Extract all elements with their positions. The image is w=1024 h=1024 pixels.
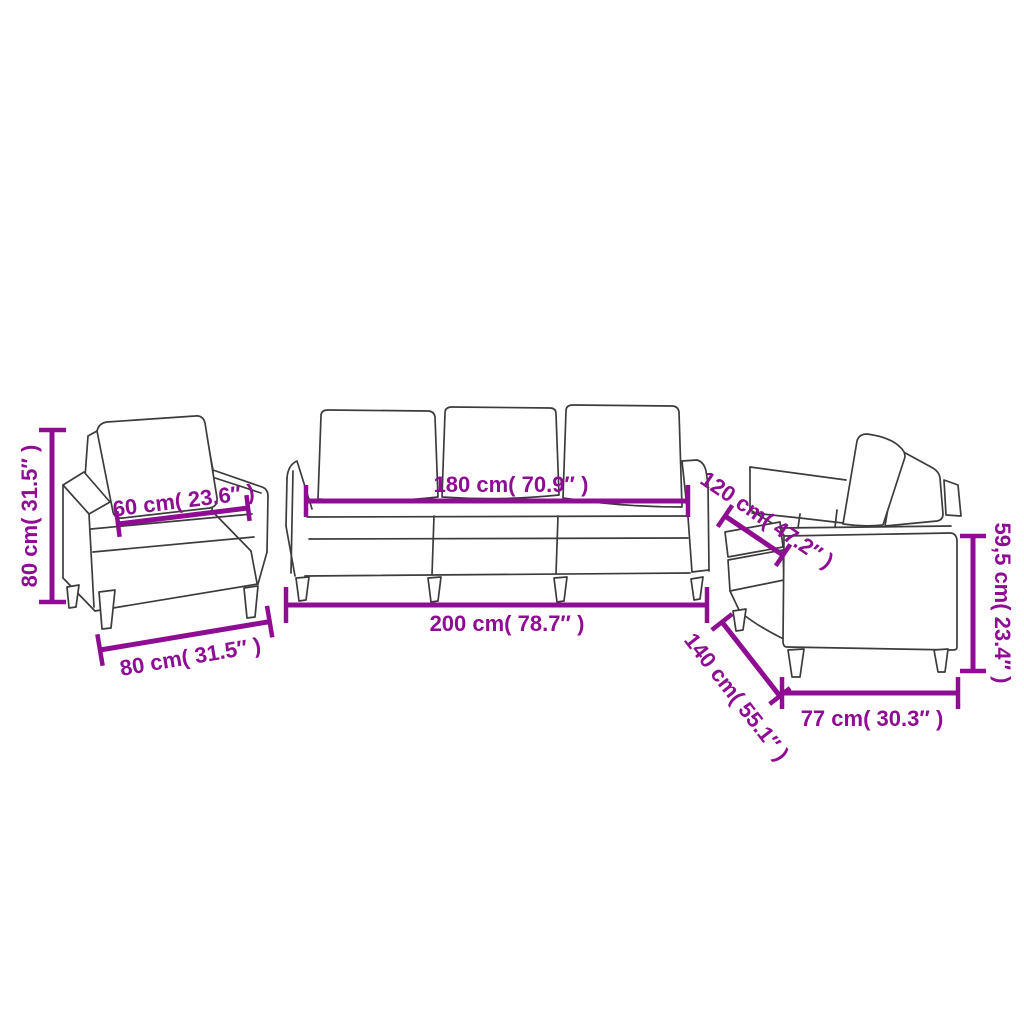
armchair-right-arm-outer bbox=[267, 496, 268, 552]
sofa2-seat-cushion-edge bbox=[835, 510, 837, 527]
armchair-leg bbox=[244, 586, 258, 618]
sofa3-seat-divider bbox=[556, 516, 558, 574]
seam-line bbox=[309, 538, 688, 539]
sofa2-leg bbox=[934, 649, 948, 672]
armchair-height-label: 80 cm( 31.5″ ) bbox=[17, 445, 42, 588]
sofa3-leg bbox=[428, 577, 441, 602]
two-seater-height-label: 59,5 cm( 23.4″ ) bbox=[990, 523, 1015, 684]
armchair-height-dimension: 80 cm( 31.5″ ) bbox=[17, 430, 66, 602]
sofa3-leg bbox=[691, 577, 703, 600]
armchair-width-label: 80 cm( 31.5″ ) bbox=[118, 633, 263, 681]
seam-line bbox=[93, 537, 254, 552]
three-seater-seat-width-label: 180 cm( 70.9″ ) bbox=[434, 472, 589, 497]
two-seater-height-dimension: 59,5 cm( 23.4″ ) bbox=[960, 523, 1015, 684]
armchair-leg bbox=[67, 585, 79, 608]
sofa3-leg bbox=[296, 577, 309, 601]
sofa3-left-arm-outer bbox=[286, 478, 287, 526]
sofa3-seat-divider bbox=[432, 516, 434, 575]
sofa3-right-arm-front bbox=[688, 517, 692, 572]
armchair-backrest-edge-left bbox=[85, 431, 97, 477]
armchair-right-arm-front bbox=[212, 511, 257, 583]
sofa2-leg bbox=[788, 649, 804, 677]
armchair-drawing bbox=[63, 416, 268, 629]
armchair-base-bottom bbox=[95, 584, 258, 611]
armchair-left-arm-top bbox=[63, 472, 110, 514]
sofa3-base-bottom bbox=[305, 573, 690, 576]
sofa3-right-arm-bottom bbox=[692, 570, 709, 572]
sofa2-leg bbox=[733, 609, 746, 631]
sofa2-base-bottom-curve bbox=[740, 612, 786, 640]
armchair-leg bbox=[99, 590, 115, 629]
two-seater-width-label: 77 cm( 30.3″ ) bbox=[801, 706, 944, 731]
armchair-base-right-edge bbox=[258, 552, 267, 584]
sofa3-leg bbox=[554, 577, 567, 602]
sofa2-back-rail-top bbox=[750, 467, 846, 480]
three-seater-width-label: 200 cm( 78.7″ ) bbox=[430, 611, 585, 636]
diagram-svg: 80 cm( 31.5″ ) 60 cm( 23.6″ ) 80 cm( 31.… bbox=[0, 0, 1024, 1024]
sofa3-back-cushion bbox=[318, 410, 438, 501]
sofa-set-dimension-diagram: 80 cm( 31.5″ ) 60 cm( 23.6″ ) 80 cm( 31.… bbox=[0, 0, 1024, 1024]
seam-line bbox=[307, 516, 686, 517]
dimension-cap bbox=[97, 634, 102, 666]
two-seater-width-dimension: 77 cm( 30.3″ ) bbox=[782, 677, 958, 731]
sofa2-back-rail-end bbox=[944, 480, 961, 516]
dimension-cap bbox=[267, 606, 272, 638]
sofa2-base-left-edge bbox=[730, 591, 740, 612]
two-seater-drawing bbox=[725, 434, 961, 677]
sofa2-arm-top-back-edge bbox=[780, 526, 951, 528]
three-seater-width-dimension: 200 cm( 78.7″ ) bbox=[286, 587, 707, 636]
